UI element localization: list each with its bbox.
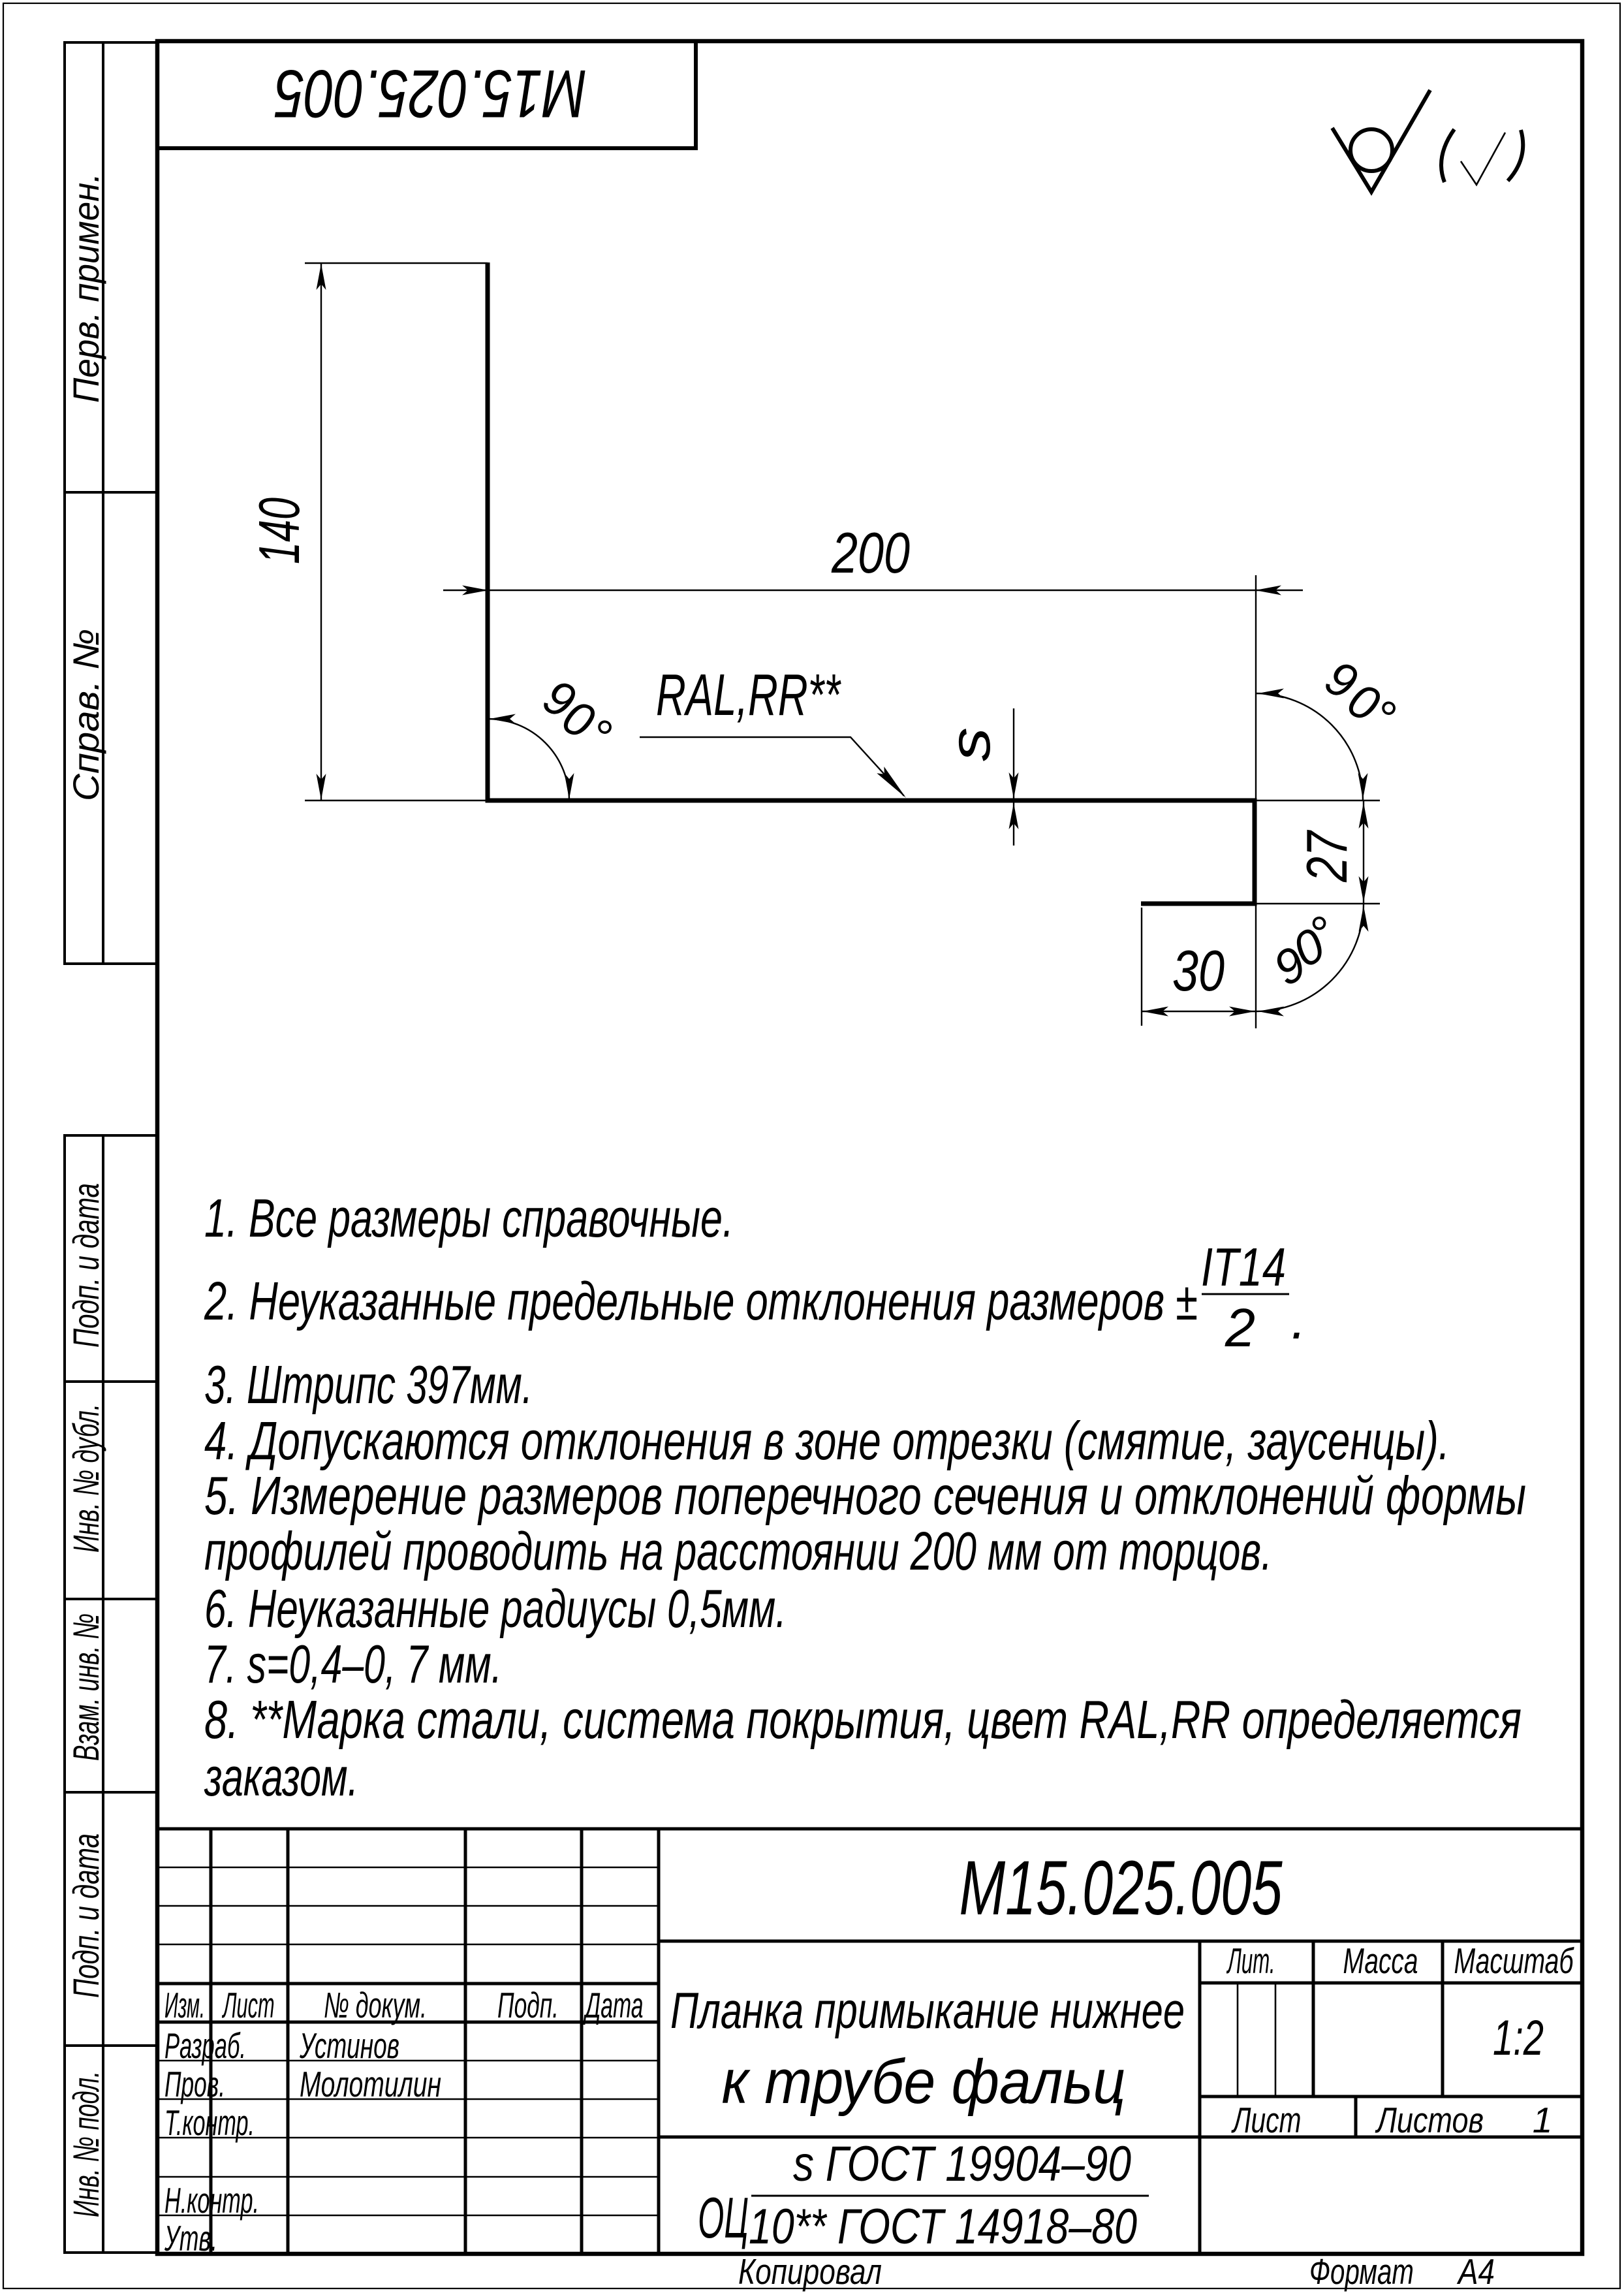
svg-text:Лит.: Лит. xyxy=(1226,1940,1275,1981)
svg-text:М15.025.005: М15.025.005 xyxy=(960,1845,1283,1931)
svg-text:27: 27 xyxy=(1294,830,1359,883)
svg-text:8. **Марка стали, система п: 8. **Марка стали, система покрытия, цвет… xyxy=(204,1689,1522,1750)
svg-text:10** ГОСТ 14918–80: 10** ГОСТ 14918–80 xyxy=(749,2199,1137,2255)
svg-text:s: s xyxy=(937,727,1002,761)
svg-text:к трубе фальц: к трубе фальц xyxy=(722,2047,1126,2117)
svg-text:.: . xyxy=(1291,1290,1306,1350)
svg-text:Молотилин: Молотилин xyxy=(300,2064,441,2104)
svg-text:7. s=0,4–0, 7 мм.: 7. s=0,4–0, 7 мм. xyxy=(204,1634,502,1694)
svg-text:Взам. инв. №: Взам. инв. № xyxy=(65,1613,106,1761)
svg-text:Копировал: Копировал xyxy=(738,2251,882,2292)
svg-text:Утв.: Утв. xyxy=(164,2218,217,2258)
svg-text:Планка примыкание нижнее: Планка примыкание нижнее xyxy=(670,1982,1185,2039)
svg-text:Масса: Масса xyxy=(1343,1940,1418,1981)
svg-text:А4: А4 xyxy=(1457,2251,1495,2292)
svg-text:Подп.: Подп. xyxy=(497,1985,559,2025)
svg-text:Дата: Дата xyxy=(583,1985,644,2025)
svg-text:Лист: Лист xyxy=(222,1985,275,2025)
svg-text:Т.контр.: Т.контр. xyxy=(164,2102,255,2143)
svg-text:4. Допускаются отклонения в: 4. Допускаются отклонения в зоне отрезки… xyxy=(204,1410,1450,1471)
svg-text:Перв. примен.: Перв. примен. xyxy=(65,173,106,403)
svg-text:Лист: Лист xyxy=(1231,2100,1301,2140)
svg-text:профилей проводить на расстоян: профилей проводить на расстоянии 200 мм … xyxy=(204,1521,1272,1581)
svg-text:1:2: 1:2 xyxy=(1493,2010,1544,2066)
svg-text:Инв. № дубл.: Инв. № дубл. xyxy=(65,1404,106,1553)
svg-text:Инв. № подл.: Инв. № подл. xyxy=(65,2071,106,2217)
svg-text:6. Неуказанные радиусы 0,5мм: 6. Неуказанные радиусы 0,5мм. xyxy=(204,1578,787,1639)
svg-text:Пров.: Пров. xyxy=(164,2064,225,2104)
svg-text:2. Неуказанные предельные от: 2. Неуказанные предельные отклонения раз… xyxy=(204,1271,1198,1331)
svg-text:Масштаб: Масштаб xyxy=(1454,1940,1574,1981)
svg-text:200: 200 xyxy=(831,520,910,585)
svg-text:Разраб.: Разраб. xyxy=(164,2025,246,2066)
svg-text:IT14: IT14 xyxy=(1201,1237,1286,1297)
svg-text:Н.контр.: Н.контр. xyxy=(164,2180,259,2221)
svg-text:1. Все размеры справочные.: 1. Все размеры справочные. xyxy=(204,1188,734,1248)
svg-text:140: 140 xyxy=(247,498,311,564)
svg-text:Изм.: Изм. xyxy=(164,1985,205,2025)
svg-text:Формат: Формат xyxy=(1309,2251,1414,2292)
svg-text:Подп. и дата: Подп. и дата xyxy=(65,1833,106,1998)
svg-text:М15.025.005: М15.025.005 xyxy=(274,55,587,131)
svg-text:s ГОСТ 19904–90: s ГОСТ 19904–90 xyxy=(793,2136,1131,2192)
svg-text:2: 2 xyxy=(1225,1297,1255,1358)
svg-text:Устинов: Устинов xyxy=(299,2025,399,2066)
svg-text:5. Измерение размеров попере: 5. Измерение размеров поперечного сечени… xyxy=(204,1465,1526,1526)
svg-text:1: 1 xyxy=(1533,2100,1553,2140)
svg-text:30: 30 xyxy=(1172,938,1225,1003)
svg-text:№ докум.: № докум. xyxy=(324,1985,427,2025)
svg-text:ОЦ: ОЦ xyxy=(698,2185,749,2250)
svg-text:3. Штрипс 397мм.: 3. Штрипс 397мм. xyxy=(204,1354,533,1415)
svg-text:RAL,RR**: RAL,RR** xyxy=(656,663,841,728)
svg-text:заказом.: заказом. xyxy=(204,1747,358,1807)
svg-text:Подп. и дата: Подп. и дата xyxy=(65,1183,106,1348)
svg-text:Листов: Листов xyxy=(1375,2100,1484,2140)
svg-text:Справ. №: Справ. № xyxy=(65,629,106,801)
